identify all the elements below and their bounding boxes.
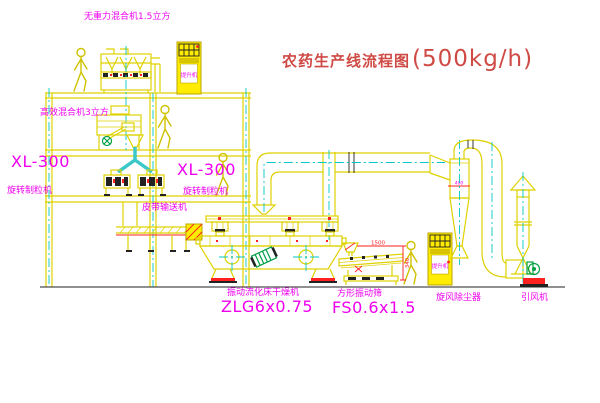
- elevator-right-text: 提升机: [432, 262, 449, 270]
- label-granulator-left-name: 旋转制粒机: [7, 187, 52, 196]
- rotary-granulators: [104, 170, 166, 196]
- label-second-mixer: 高效混合机3立方: [40, 109, 109, 118]
- y-discharge-pipe: [118, 147, 152, 172]
- diagram-title: 农药生产线流程图 (500kg/h): [282, 46, 533, 72]
- label-dryer-model: ZLG6x0.75: [221, 299, 313, 315]
- title-chinese: 农药生产线流程图: [282, 50, 410, 71]
- label-screen-model: FS0.6x1.5: [332, 300, 416, 316]
- title-capacity: (500kg/h): [412, 46, 533, 72]
- flow-diagram-canvas: 提升机: [0, 0, 600, 403]
- label-cyclone: 旋风除尘器: [436, 294, 481, 303]
- screen-height-dimension: 340: [405, 257, 411, 268]
- label-fan: 引风机: [521, 294, 548, 303]
- fluid-bed-dryer: [196, 216, 346, 283]
- elevator-top-text: 提升机: [181, 71, 198, 79]
- label-granulator-mid-name: 旋转制粒机: [183, 188, 228, 197]
- label-belt-conveyor: 皮带输送机: [142, 204, 187, 213]
- label-granulator-left-model: XL-300: [11, 154, 70, 170]
- screen-width-dimension: 1500: [371, 241, 385, 247]
- exhaust-stack-and-fan: [511, 172, 548, 287]
- square-vibrating-screen: 1500 340: [339, 241, 411, 286]
- bucket-elevator-top: 提升机: [177, 42, 201, 94]
- label-gravity-free-mixer: 无重力混合机1.5立方: [84, 13, 170, 22]
- label-granulator-mid-model: XL-300: [177, 162, 236, 178]
- bucket-elevator-right: 提升机: [428, 233, 452, 285]
- vibration-motor: [250, 246, 279, 268]
